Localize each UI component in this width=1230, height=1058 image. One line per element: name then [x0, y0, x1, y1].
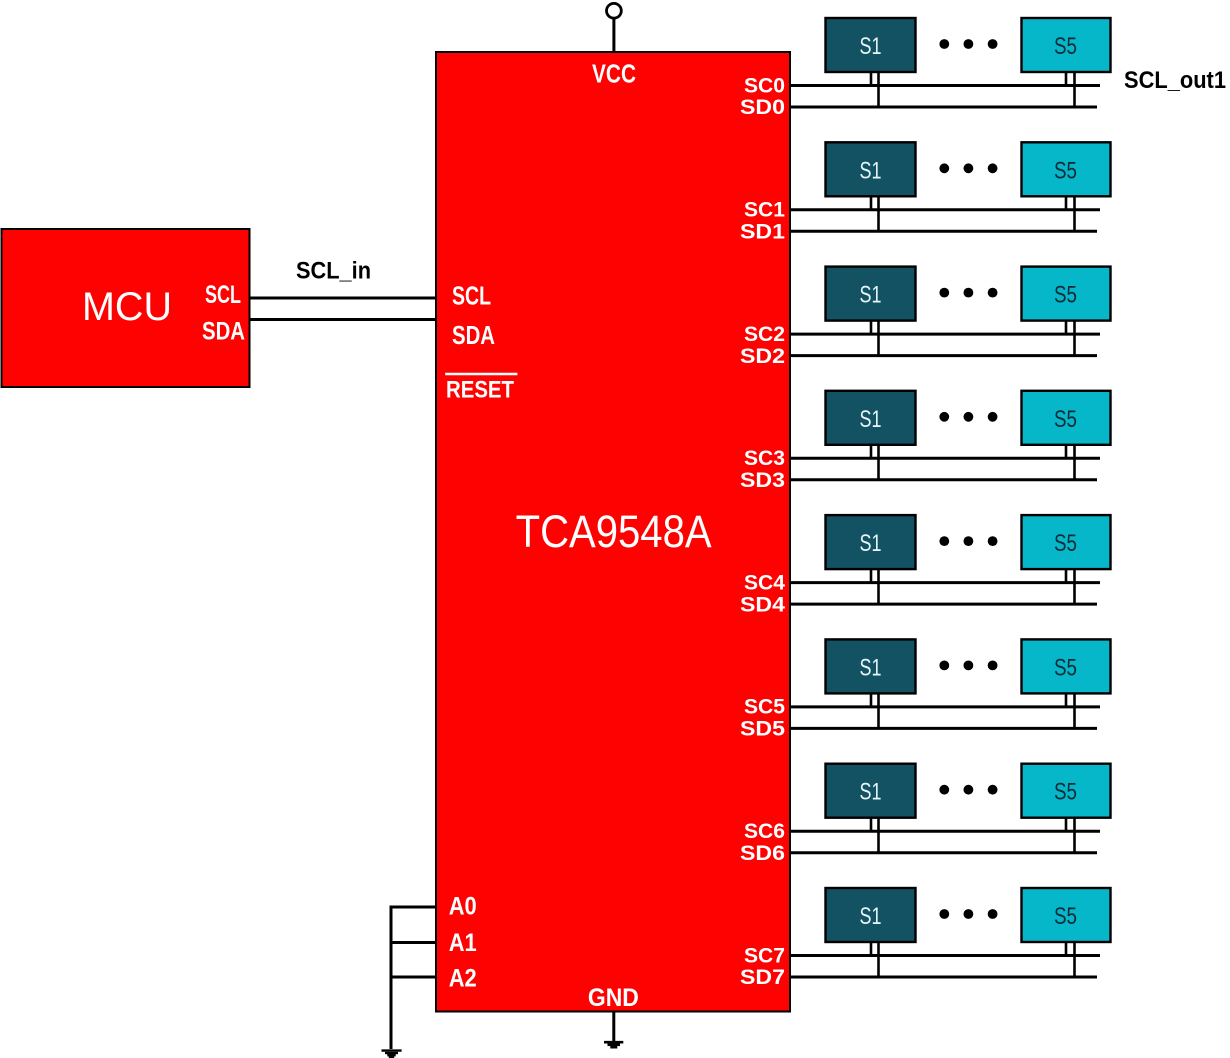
svg-text:TCA9548A: TCA9548A [516, 506, 712, 557]
svg-text:SD6: SD6 [740, 841, 785, 865]
svg-text:SD0: SD0 [740, 95, 785, 119]
svg-text:SC0: SC0 [744, 73, 785, 97]
svg-text:VCC: VCC [592, 58, 636, 88]
svg-text:GND: GND [588, 984, 639, 1012]
svg-text:S5: S5 [1054, 157, 1077, 184]
svg-text:SD4: SD4 [740, 592, 785, 616]
svg-text:SDA: SDA [452, 320, 495, 350]
svg-text:S5: S5 [1054, 282, 1077, 309]
svg-text:SDA: SDA [202, 318, 245, 346]
svg-text:S1: S1 [860, 903, 882, 930]
svg-text:A1: A1 [449, 929, 477, 957]
svg-text:RESET: RESET [446, 377, 514, 404]
svg-text:SC2: SC2 [744, 322, 785, 346]
svg-text:SCL: SCL [205, 281, 241, 309]
svg-text:SC1: SC1 [744, 198, 785, 222]
svg-text:SD5: SD5 [740, 717, 785, 741]
svg-text:SD1: SD1 [740, 220, 785, 244]
svg-text:SC4: SC4 [744, 570, 785, 594]
svg-text:SCL_out1: SCL_out1 [1124, 67, 1226, 94]
svg-text:S1: S1 [860, 157, 882, 184]
svg-text:SD7: SD7 [740, 965, 785, 989]
svg-text:S5: S5 [1054, 779, 1077, 806]
svg-text:SD3: SD3 [740, 468, 785, 492]
svg-text:SCL_in: SCL_in [296, 258, 371, 285]
svg-text:A2: A2 [449, 965, 477, 993]
svg-text:SC3: SC3 [744, 446, 785, 470]
svg-text:MCU: MCU [82, 285, 172, 329]
svg-text:S5: S5 [1054, 406, 1077, 433]
svg-text:S1: S1 [860, 779, 882, 806]
svg-text:S1: S1 [860, 282, 882, 309]
svg-text:A0: A0 [449, 892, 477, 920]
svg-text:S1: S1 [860, 406, 882, 433]
svg-text:S5: S5 [1054, 530, 1077, 557]
svg-text:S5: S5 [1054, 33, 1077, 60]
svg-text:S1: S1 [860, 654, 882, 681]
svg-text:SC6: SC6 [744, 819, 785, 843]
svg-text:SD2: SD2 [740, 344, 785, 368]
svg-text:SC7: SC7 [744, 943, 785, 967]
svg-text:S1: S1 [860, 33, 882, 60]
svg-text:S5: S5 [1054, 903, 1077, 930]
svg-text:S5: S5 [1054, 654, 1077, 681]
svg-text:S1: S1 [860, 530, 882, 557]
svg-text:SC5: SC5 [744, 695, 785, 719]
svg-text:SCL: SCL [452, 281, 491, 311]
